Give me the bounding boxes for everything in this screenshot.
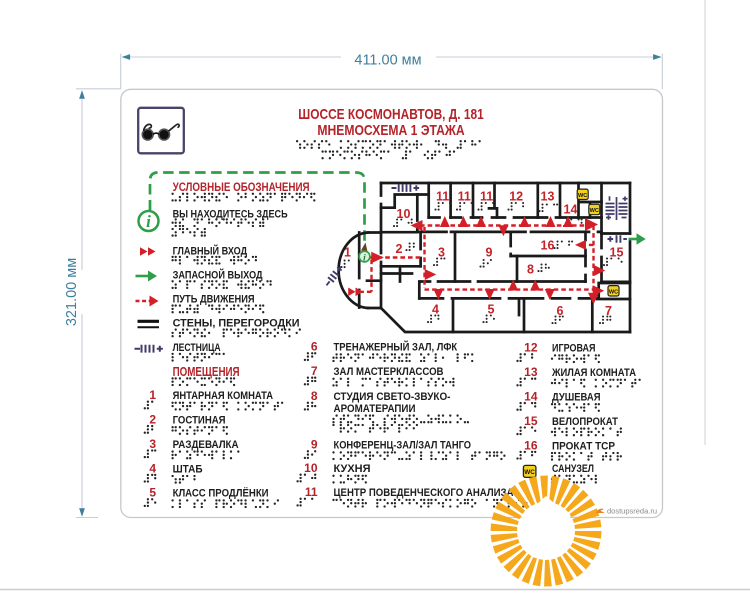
svg-text:КУХНЯ: КУХНЯ bbox=[334, 463, 371, 475]
svg-text:ЗАЛ МАСТЕРКЛАССОВ: ЗАЛ МАСТЕРКЛАССОВ bbox=[334, 366, 444, 378]
svg-text:14: 14 bbox=[524, 390, 538, 404]
svg-text:АРОМАТЕРАПИИ: АРОМАТЕРАПИИ bbox=[334, 403, 416, 415]
svg-text:ПУТЬ ДВИЖЕНИЯ: ПУТЬ ДВИЖЕНИЯ bbox=[173, 293, 255, 305]
svg-text:4: 4 bbox=[149, 461, 156, 475]
svg-text:dostupsreda.ru: dostupsreda.ru bbox=[607, 507, 657, 516]
svg-text:10: 10 bbox=[397, 207, 411, 221]
svg-text:ШТАБ: ШТАБ bbox=[173, 463, 203, 475]
svg-text:3: 3 bbox=[149, 437, 156, 451]
svg-text:8: 8 bbox=[527, 263, 534, 277]
svg-text:9: 9 bbox=[486, 246, 493, 260]
svg-text:ПОМЕЩЕНИЯ: ПОМЕЩЕНИЯ bbox=[173, 365, 240, 379]
svg-text:КЛАСС ПРОДЛЁНКИ: КЛАСС ПРОДЛЁНКИ bbox=[173, 487, 269, 500]
svg-text:ДУШЕВАЯ: ДУШЕВАЯ bbox=[552, 392, 601, 404]
svg-text:ЯНТАРНАЯ КОМНАТА: ЯНТАРНАЯ КОМНАТА bbox=[173, 390, 274, 402]
svg-text:11: 11 bbox=[436, 189, 449, 203]
svg-text:2: 2 bbox=[396, 242, 403, 256]
svg-text:ГОСТИНАЯ: ГОСТИНАЯ bbox=[173, 415, 226, 427]
svg-text:УСЛОВНЫЕ ОБОЗНАЧЕНИЯ: УСЛОВНЫЕ ОБОЗНАЧЕНИЯ bbox=[173, 182, 310, 194]
svg-text:7: 7 bbox=[311, 364, 318, 378]
svg-text:СТЕНЫ, ПЕРЕГОРОДКИ: СТЕНЫ, ПЕРЕГОРОДКИ bbox=[173, 318, 300, 330]
svg-text:12: 12 bbox=[524, 341, 538, 355]
svg-text:ЛЕСТНИЦА: ЛЕСТНИЦА bbox=[173, 342, 221, 354]
svg-text:ЦЕНТР ПОВЕДЕНЧЕСКОГО АНАЛИЗА: ЦЕНТР ПОВЕДЕНЧЕСКОГО АНАЛИЗА bbox=[334, 487, 514, 499]
svg-text:ВЕЛОПРОКАТ: ВЕЛОПРОКАТ bbox=[552, 416, 618, 428]
svg-text:3: 3 bbox=[438, 246, 445, 260]
svg-text:САНУЗЕЛ: САНУЗЕЛ bbox=[552, 463, 594, 475]
svg-text:9: 9 bbox=[311, 438, 318, 452]
svg-text:12: 12 bbox=[509, 189, 523, 203]
svg-text:15: 15 bbox=[524, 414, 538, 428]
svg-text:ВЫ НАХОДИТЕСЬ ЗДЕСЬ: ВЫ НАХОДИТЕСЬ ЗДЕСЬ bbox=[173, 209, 288, 221]
svg-text:2: 2 bbox=[149, 413, 156, 427]
svg-text:16: 16 bbox=[541, 239, 555, 253]
svg-text:ГЛАВНЫЙ ВХОД: ГЛАВНЫЙ ВХОД bbox=[173, 244, 248, 257]
svg-text:i: i bbox=[363, 253, 366, 263]
svg-text:10: 10 bbox=[304, 461, 318, 475]
svg-text:14: 14 bbox=[564, 203, 578, 217]
svg-text:МНЕМОСХЕМА 1 ЭТАЖА: МНЕМОСХЕМА 1 ЭТАЖА bbox=[317, 122, 464, 139]
svg-text:1: 1 bbox=[149, 388, 156, 402]
svg-text:321.00 мм: 321.00 мм bbox=[64, 258, 80, 326]
svg-text:411.00 мм: 411.00 мм bbox=[354, 53, 421, 69]
svg-text:КОНФЕРЕНЦ-ЗАЛ/ЗАЛ ТАНГО: КОНФЕРЕНЦ-ЗАЛ/ЗАЛ ТАНГО bbox=[334, 440, 472, 452]
svg-text:РАЗДЕВАЛКА: РАЗДЕВАЛКА bbox=[173, 439, 239, 451]
svg-text:СТУДИЯ СВЕТО-ЗВУКО-: СТУДИЯ СВЕТО-ЗВУКО- bbox=[334, 391, 451, 403]
svg-text:11: 11 bbox=[458, 189, 471, 203]
svg-text:ЗАПАСНОЙ ВЫХОД: ЗАПАСНОЙ ВЫХОД bbox=[173, 269, 263, 282]
svg-text:13: 13 bbox=[524, 365, 538, 379]
svg-text:4: 4 bbox=[432, 303, 439, 317]
svg-text:ТРЕНАЖЕРНЫЙ ЗАЛ, ЛФК: ТРЕНАЖЕРНЫЙ ЗАЛ, ЛФК bbox=[334, 341, 458, 354]
svg-text:11: 11 bbox=[305, 485, 318, 499]
svg-text:13: 13 bbox=[541, 189, 555, 203]
svg-text:8: 8 bbox=[311, 389, 318, 403]
svg-text:ШОССЕ КОСМОНАВТОВ, Д. 181: ШОССЕ КОСМОНАВТОВ, Д. 181 bbox=[298, 106, 483, 123]
svg-text:WC: WC bbox=[578, 193, 587, 199]
svg-text:15: 15 bbox=[610, 246, 624, 260]
svg-text:i: i bbox=[146, 212, 151, 231]
svg-text:11: 11 bbox=[480, 189, 493, 203]
svg-text:ПРОКАТ ТСР: ПРОКАТ ТСР bbox=[552, 440, 615, 452]
svg-text:1: 1 bbox=[344, 246, 351, 260]
svg-text:WC: WC bbox=[590, 208, 599, 214]
svg-text:6: 6 bbox=[311, 340, 318, 354]
svg-text:ЖИЛАЯ КОМНАТА: ЖИЛАЯ КОМНАТА bbox=[551, 367, 636, 379]
svg-text:WC: WC bbox=[524, 469, 535, 476]
svg-text:16: 16 bbox=[524, 438, 538, 452]
svg-text:5: 5 bbox=[488, 303, 495, 317]
svg-text:WC: WC bbox=[609, 289, 618, 295]
svg-text:5: 5 bbox=[149, 486, 156, 500]
svg-text:ИГРОВАЯ: ИГРОВАЯ bbox=[552, 343, 596, 355]
